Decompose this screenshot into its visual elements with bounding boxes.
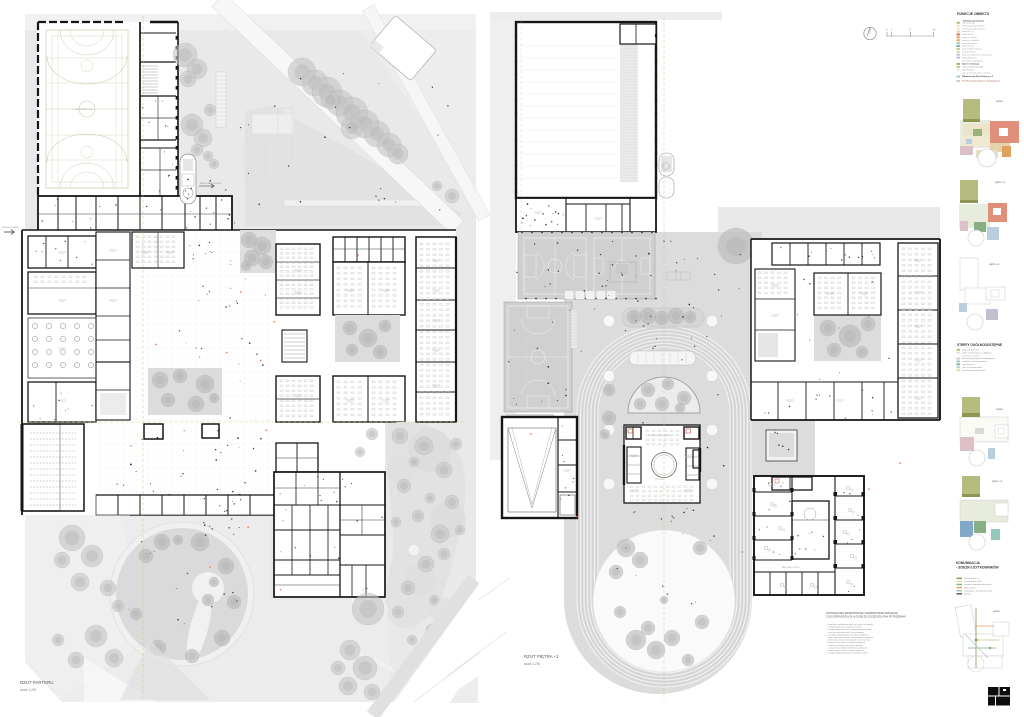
svg-text:strefa techniczna: strefa techniczna [962, 51, 976, 54]
svg-text:uczniowie klas IV-VIII: uczniowie klas IV-VIII [964, 581, 982, 583]
svg-text:strefa sal i laboratoriów tema: strefa sal i laboratoriów tematycznych [962, 53, 992, 56]
svg-text:kadra i goście: kadra i goście [964, 586, 976, 589]
svg-text:— miejsca postojowe przy wejś: — miejsca postojowe przy wejściu głównym [826, 644, 863, 647]
svg-text:pokoje nauczycielskie: pokoje nauczycielskie [962, 40, 979, 42]
svg-text:strefa administracji: strefa administracji [962, 42, 978, 45]
svg-text:FUNKCJE OBIEKTU: FUNKCJE OBIEKTU [957, 12, 990, 16]
svg-text:— oznaczenia w alfabecie Brai: — oznaczenia w alfabecie Braille'a przy … [826, 646, 867, 649]
svg-text:strefa biblioteczna: strefa biblioteczna [962, 56, 976, 59]
svg-text:— posadzki antypoślizgowe o w: — posadzki antypoślizgowe o wyrównanej f… [826, 633, 869, 636]
svg-text:strefa wejściowa: strefa wejściowa [962, 22, 975, 25]
svg-text:piętro +1: piętro +1 [992, 479, 1003, 483]
svg-text:sale - przestrzeń sportu: sale - przestrzeń sportu [962, 366, 982, 369]
svg-text:hala sportowa: hala sportowa [962, 69, 975, 72]
svg-text:przestrzenie wspólne: przestrzenie wspólne [962, 354, 980, 357]
svg-text:strefa prostřed i rekreacji: strefa prostřed i rekreacji [962, 48, 982, 51]
svg-text:skala 1:250: skala 1:250 [524, 662, 541, 666]
svg-text:piętro +2: piętro +2 [989, 262, 1000, 266]
svg-text:— czytelne oznaczenia stref i: — czytelne oznaczenia stref i funkcji bu… [826, 631, 864, 634]
svg-text:strefa żywienia: strefa żywienia [962, 45, 974, 48]
svg-text:— windy dostępne dla osób z n: — windy dostępne dla osób z niepełnospra… [826, 628, 871, 631]
svg-text:mediateka i sale warsztatowe: mediateka i sale warsztatowe [962, 360, 987, 363]
svg-text:parter: parter [996, 407, 1003, 411]
svg-text:Młodzieżowy Dom Kultury w 3: Młodzieżowy Dom Kultury w 3 [962, 75, 994, 78]
svg-text:poradnia psychologiczno-pedago: poradnia psychologiczno-pedagogiczna [962, 357, 996, 360]
svg-text:skala 1:250: skala 1:250 [20, 688, 37, 692]
svg-text:— strefy wyciszenia dla uczni: — strefy wyciszenia dla uczniów ze spekt… [826, 649, 864, 652]
svg-text:— szerokie korytarze i przejś: — szerokie korytarze i przejścia min. 1,… [826, 626, 862, 629]
svg-text:PATIO NAUCZYCIELI: PATIO NAUCZYCIELI [782, 566, 800, 569]
svg-text:strefa sal gimnastycznych: strefa sal gimnastycznych [962, 66, 984, 69]
svg-text:— brak barier architektoniczn: — brak barier architektonicznych na tere… [826, 623, 873, 626]
svg-text:— pętle indukcyjne w salach i: — pętle indukcyjne w salach i przestrzen… [826, 636, 873, 639]
svg-text:strefa klas 4-8: strefa klas 4-8 [962, 33, 973, 36]
svg-text:parter: parter [993, 609, 1000, 613]
svg-text:— kontrastowe oznaczenia kraw: — kontrastowe oznaczenia krawędzi stopni… [826, 639, 871, 642]
svg-text:— dostęp światła dziennego we: — dostęp światła dziennego we wszystkich… [826, 652, 868, 655]
svg-text:strefa klas 1-3: strefa klas 1-3 [962, 30, 973, 33]
svg-text:zaplecze sanitarne: zaplecze sanitarne [962, 36, 977, 39]
svg-text:STREFY OGÓLNODOSTĘPNE: STREFY OGÓLNODOSTĘPNE [957, 342, 1002, 347]
svg-text:— toalety dostosowane na każd: — toalety dostosowane na każdej kondygna… [826, 641, 865, 644]
svg-text:WEJŚCIE GŁÓWNE: WEJŚCIE GŁÓWNE [2, 226, 19, 229]
svg-text:Sport i rekreacja: Sport i rekreacja [962, 63, 980, 66]
svg-text:dostawy: dostawy [964, 593, 971, 596]
svg-text:RZUT PARTERU: RZUT PARTERU [20, 680, 53, 685]
svg-text:sale - przestrzeń sportu i rek: sale - przestrzeń sportu i rekreacji [962, 71, 991, 74]
svg-text:uczniowie klas 1-3: uczniowie klas 1-3 [964, 578, 979, 580]
svg-text:strefa podstawowa edukacji: strefa podstawowa edukacji [962, 24, 985, 27]
svg-text:komunikacja ogólnodostępna: komunikacja ogólnodostępna [962, 27, 985, 30]
svg-text:strefa sali sportowej: strefa sali sportowej [962, 349, 979, 352]
svg-text:komunikacja piesza w dzień: komunikacja piesza w dzień [962, 370, 985, 372]
svg-text:RZUT PIĘTRA +1: RZUT PIĘTRA +1 [524, 654, 559, 659]
svg-text:piętro +1: piętro +1 [995, 180, 1006, 184]
svg-text:1.7 SALA GIMNASTYCZNA: 1.7 SALA GIMNASTYCZNA [72, 108, 94, 111]
svg-text:parter: parter [996, 99, 1003, 103]
svg-text:strefa żywienia: strefa żywienia [962, 363, 975, 366]
svg-text:ROZWIĄZANIA WEWNĘTRZNE I ZEWNĘ: ROZWIĄZANIA WEWNĘTRZNE I ZEWNĘTRZNE ZWIĄ… [826, 611, 898, 615]
svg-text:strefa sali informatyczne i bi: strefa sali informatyczne i biblioteki [962, 351, 992, 354]
svg-text:KOMUNIKACJA: KOMUNIKACJA [956, 561, 981, 565]
svg-text:- ŚCIEŻKI UŻYTKOWNIKÓW: - ŚCIEŻKI UŻYTKOWNIKÓW [956, 565, 999, 570]
svg-text:uczniowie oddziałów specjalnyc: uczniowie oddziałów specjalnych [964, 584, 992, 586]
svg-text:inne funkcje uzupełniające: inne funkcje uzupełniające [962, 61, 983, 63]
svg-text:Poradnia psychologiczno-pedago: Poradnia psychologiczno-pedagogiczna [962, 81, 1001, 83]
svg-text:towarzystwo i mieszkańcy osied: towarzystwo i mieszkańcy osiedla [964, 589, 993, 592]
